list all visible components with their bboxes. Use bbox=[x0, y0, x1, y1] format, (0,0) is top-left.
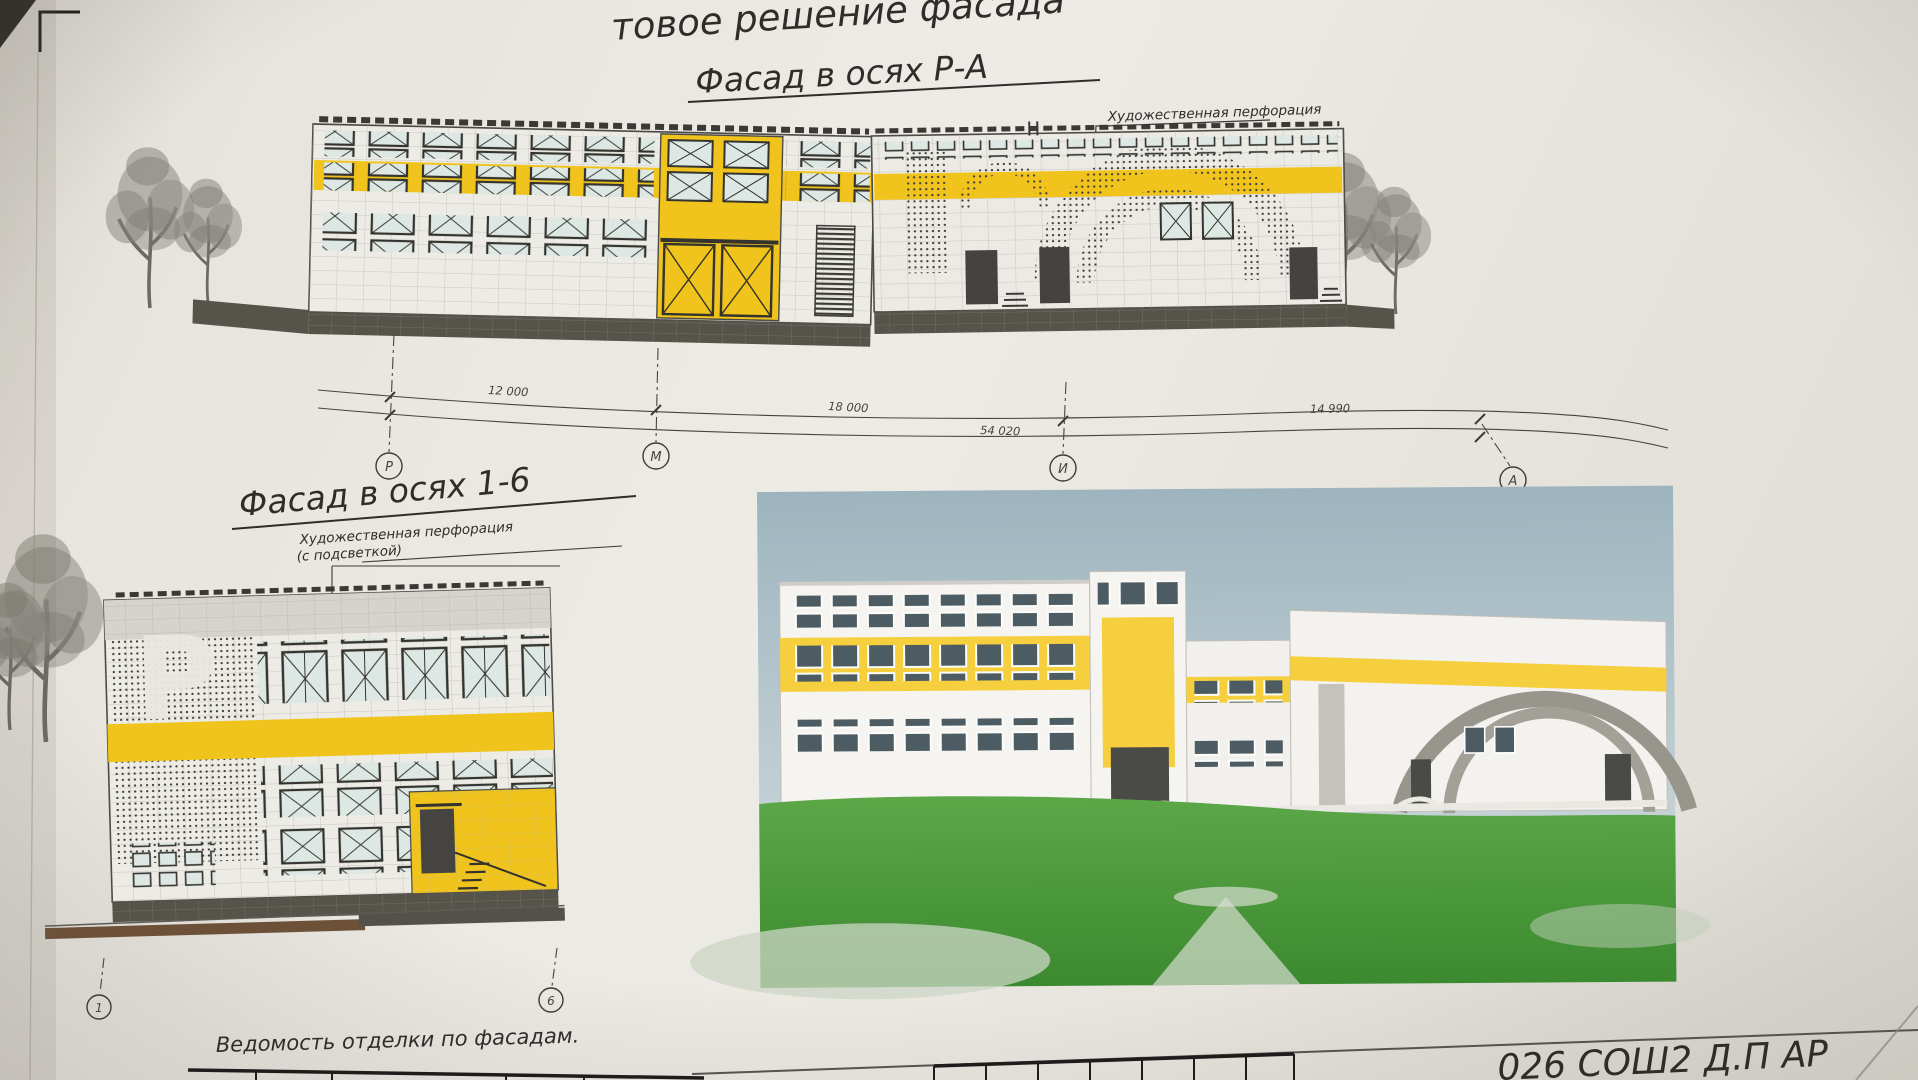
entrance-canopy bbox=[661, 240, 779, 243]
facade-pa-right-wing bbox=[871, 116, 1394, 337]
photographed-drawing-sheet: товое решение фасада Фасад в осях Р-А Ху… bbox=[0, 0, 1918, 1080]
entrance-door bbox=[420, 809, 456, 874]
window-row-1 bbox=[257, 634, 551, 704]
dim-label-4: 14 990 bbox=[1310, 401, 1350, 416]
axis-label-1: 1 bbox=[95, 1001, 103, 1015]
dim-label-2: 18 000 bbox=[828, 399, 869, 415]
louver-panel bbox=[815, 225, 855, 316]
dim-label-1: 12 000 bbox=[488, 383, 529, 399]
perforation-glyph: Р bbox=[132, 611, 220, 747]
window-row-3 bbox=[322, 212, 657, 258]
entrance-canopy bbox=[416, 804, 462, 805]
door bbox=[1039, 247, 1070, 303]
facade-16-drawing: Р bbox=[36, 583, 565, 939]
window-row-3 bbox=[262, 824, 411, 876]
entrance-section bbox=[409, 788, 558, 894]
axis-label-i: И bbox=[1058, 462, 1068, 477]
entrance-tower bbox=[657, 134, 783, 321]
dim-label-3: 54 020 bbox=[980, 423, 1021, 438]
small-window-grid bbox=[127, 841, 216, 887]
tower-yellow-panel bbox=[1102, 617, 1175, 767]
facade-pa-drawing bbox=[192, 116, 1394, 347]
axis-label-6: 6 bbox=[547, 994, 555, 1008]
door bbox=[1289, 247, 1318, 299]
left-edge-shadow bbox=[0, 0, 56, 1080]
sheet-canvas: товое решение фасада Фасад в осях Р-А Ху… bbox=[0, 0, 1918, 1080]
axis-label-m: М bbox=[650, 450, 661, 465]
door bbox=[965, 250, 998, 304]
color-rendering bbox=[687, 485, 1711, 1000]
